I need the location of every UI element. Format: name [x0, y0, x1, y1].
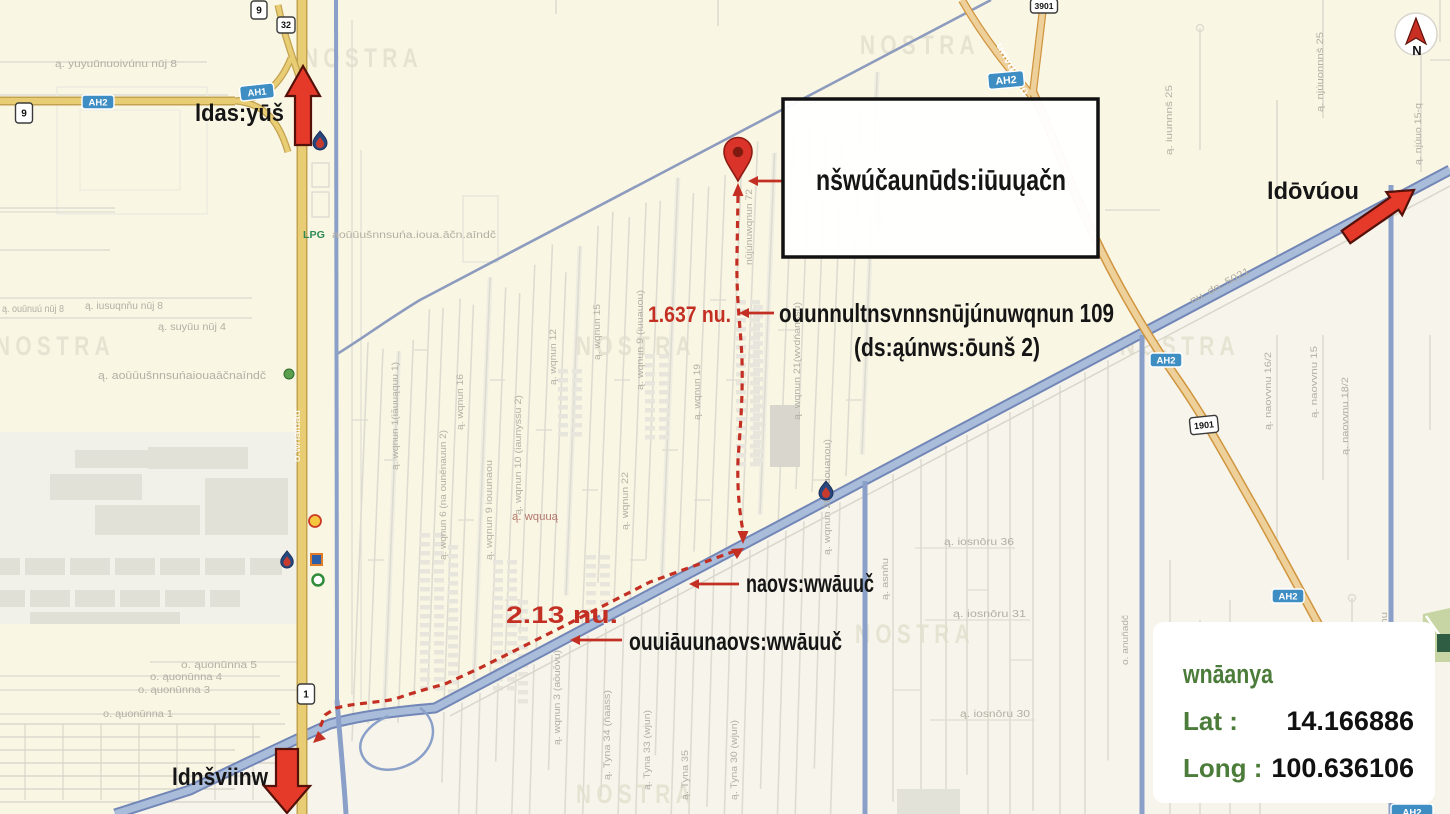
svg-text:ą. yuyuūnuoivúnu nūj 8: ą. yuyuūnuoivúnu nūj 8 [55, 59, 178, 70]
svg-text:ouuiāuunaovs:wwāuuč: ouuiāuunaovs:wwāuuč [629, 628, 842, 656]
svg-text:ą. wqnun 10 (iaunyssu 2): ą. wqnun 10 (iaunyssu 2) [513, 395, 524, 515]
svg-text:naovs:wwāuuč: naovs:wwāuuč [746, 570, 874, 598]
svg-text:ldnšviinw: ldnšviinw [172, 764, 268, 791]
svg-text:LPG: LPG [303, 230, 325, 241]
svg-text:1: 1 [303, 690, 309, 701]
svg-text:ą. wqnun 1(iāuuąquu 1): ą. wqnun 1(iāuuąquu 1) [390, 362, 401, 470]
svg-text:ą. wqnun 9 (iuuauou): ą. wqnun 9 (iuuauou) [635, 290, 646, 390]
svg-text:nšwúčaunūds:iūuųačn: nšwúčaunūds:iūuųačn [816, 164, 1066, 197]
svg-text:ą. wqnun 22: ą. wqnun 22 [620, 472, 631, 530]
svg-text:ą. Tyna 34 (ňaass): ą. Tyna 34 (ňaass) [602, 690, 613, 780]
svg-text:o. anuňadč: o. anuňadč [1120, 615, 1131, 665]
svg-text:(ds:ąúnws:ōunš 2): (ds:ąúnws:ōunš 2) [854, 332, 1040, 362]
svg-text:ouunnultnsvnnsnūjúnuwqnun 109: ouunnultnsvnnsnūjúnuwqnun 109 [779, 298, 1114, 328]
svg-text:o. ąuonūnna 1: o. ąuonūnna 1 [103, 709, 173, 720]
svg-text:aoūūušnnsuńa.ioua.āčn.aīndč: aoūūušnnsuńa.ioua.āčn.aīndč [332, 230, 496, 241]
svg-text:NOSTRA: NOSTRA [860, 30, 980, 60]
svg-text:ą. wqnun 15: ą. wqnun 15 [592, 304, 603, 360]
svg-text:AH2: AH2 [1402, 807, 1421, 814]
svg-text:ą. wqnun 16: ą. wqnun 16 [455, 374, 466, 430]
svg-text:ą. iosnōru 36: ą. iosnōru 36 [944, 537, 1015, 548]
svg-text:NOSTRA: NOSTRA [303, 43, 423, 73]
svg-text:ą. wqnun 19: ą. wqnun 19 [692, 364, 703, 420]
svg-text:ą. naovvnu 18/2: ą. naovvnu 18/2 [1340, 377, 1351, 455]
svg-text:ą. wqnun 12: ą. wqnun 12 [548, 329, 559, 385]
svg-text:ą. wqnun 9 iouunaou: ą. wqnun 9 iouunaou [484, 460, 495, 560]
svg-text:Lat :: Lat : [1183, 706, 1238, 736]
svg-text:o. ąuonūnna 4: o. ąuonūnna 4 [150, 672, 222, 683]
svg-text:AH2: AH2 [88, 97, 107, 108]
svg-text:ą. Tyna 33 (wjun): ą. Tyna 33 (wjun) [642, 710, 653, 790]
svg-text:ą. iuunnnš 25: ą. iuunnnš 25 [1164, 85, 1175, 155]
svg-text:9: 9 [256, 6, 262, 17]
svg-text:o.wnalūāu: o.wnalūāu [292, 410, 302, 462]
svg-text:ą. suyūu nūj 4: ą. suyūu nūj 4 [158, 322, 226, 333]
svg-text:32: 32 [281, 20, 291, 30]
svg-text:ą. Tyna 30 (wjun): ą. Tyna 30 (wjun) [729, 720, 740, 800]
svg-text:Long :: Long : [1183, 753, 1262, 783]
svg-text:N: N [1412, 43, 1421, 58]
svg-text:2.13 nu.: 2.13 nu. [506, 602, 618, 629]
svg-text:14.166886: 14.166886 [1286, 706, 1414, 736]
svg-text:NOSTRA: NOSTRA [855, 619, 975, 649]
svg-text:AH1: AH1 [247, 86, 268, 99]
svg-text:1.637 nu.: 1.637 nu. [648, 302, 731, 327]
svg-text:o. ąuonūnna 3: o. ąuonūnna 3 [138, 685, 210, 696]
svg-text:ą. ouūnuú nūj 8: ą. ouūnuú nūj 8 [2, 304, 64, 315]
svg-text:ą. iosnōru 31: ą. iosnōru 31 [953, 609, 1027, 620]
svg-text:wnāanya: wnāanya [1182, 659, 1274, 689]
svg-text:AH2: AH2 [995, 74, 1017, 88]
svg-text:ą. naovvnu 16/2: ą. naovvnu 16/2 [1263, 352, 1274, 430]
svg-text:ą. iosnōru 30: ą. iosnōru 30 [960, 709, 1031, 720]
svg-text:ldas:yūš: ldas:yūš [195, 100, 284, 127]
svg-text:ą. naovvnu 15: ą. naovvnu 15 [1309, 346, 1320, 418]
svg-text:NOSTRA: NOSTRA [576, 779, 696, 809]
svg-text:1901: 1901 [1194, 419, 1215, 431]
svg-text:ldōvúou: ldōvúou [1267, 178, 1359, 205]
svg-text:ą. njúuo 15-q: ą. njúuo 15-q [1413, 103, 1424, 165]
svg-text:ą. njúuonnnš 25: ą. njúuonnnš 25 [1315, 32, 1326, 112]
svg-text:AH2: AH2 [1156, 355, 1175, 366]
svg-text:9: 9 [21, 109, 27, 120]
svg-text:nūjúnuwqnun 72: nūjúnuwqnun 72 [744, 189, 755, 265]
svg-text:ą. aoūūušnnsuńaiouaāčnaīndč: ą. aoūūušnnsuńaiouaāčnaīndč [98, 370, 267, 382]
svg-text:ą. Tyna 35: ą. Tyna 35 [680, 750, 691, 800]
svg-text:AH2: AH2 [1278, 591, 1297, 602]
svg-text:ą. wqnun 3 (aōuōvu): ą. wqnun 3 (aōuōvu) [552, 650, 563, 745]
svg-text:ą. iusuqnňu nūj 8: ą. iusuqnňu nūj 8 [85, 301, 163, 312]
svg-text:ą. asnňu: ą. asnňu [880, 558, 891, 600]
svg-text:3901: 3901 [1035, 1, 1054, 11]
svg-text:100.636106: 100.636106 [1271, 753, 1414, 783]
svg-text:NOSTRA: NOSTRA [0, 331, 115, 361]
svg-text:ą. wqnun 6 (na ouněnauun 2): ą. wqnun 6 (na ouněnauun 2) [438, 430, 449, 560]
svg-text:o. ąuonūnna 5: o. ąuonūnna 5 [181, 660, 258, 671]
